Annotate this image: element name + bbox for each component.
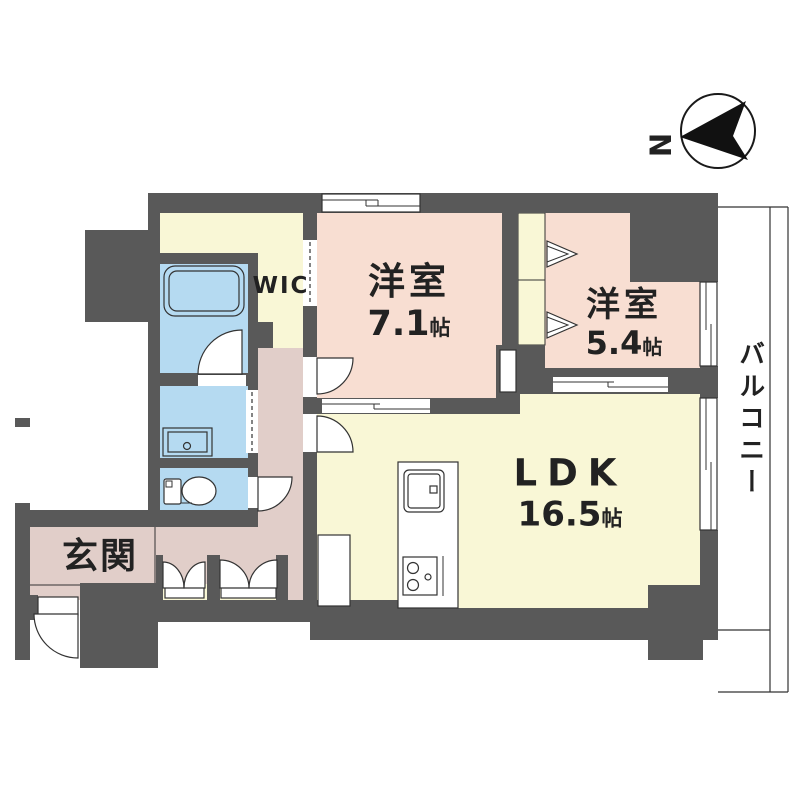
between-rooms-closet-floor xyxy=(518,213,545,345)
kitchen-counter xyxy=(398,462,458,608)
bedroom-main-sliding-door xyxy=(322,399,430,413)
compass-north-label: N xyxy=(646,133,676,157)
washroom-floor xyxy=(160,386,248,458)
bedroom-main-label: 洋室 7.1帖 xyxy=(367,263,450,343)
bedroom-second-window xyxy=(700,282,717,366)
toilet-icon xyxy=(164,477,216,505)
pipe-shaft xyxy=(500,350,516,392)
washroom-folding-door xyxy=(246,390,258,453)
compass xyxy=(680,94,755,168)
balcony-label: バルコニー xyxy=(735,340,762,500)
ldk-cabinet xyxy=(318,535,350,606)
entrance-door xyxy=(34,597,78,658)
ldk-floor xyxy=(317,394,700,608)
floor-plan: N 洋室 7.1帖 洋室 5.4帖 LDK 16.5帖 WIC 玄関 バルコニー xyxy=(0,0,800,800)
outer-wall-window xyxy=(15,427,30,503)
entrance-label: 玄関 xyxy=(62,538,138,576)
bedroom-main-window xyxy=(322,194,420,212)
wic-label: WIC xyxy=(253,274,310,298)
bedroom-second-sliding-door xyxy=(553,377,668,392)
ldk-label: LDK 16.5帖 xyxy=(514,455,627,534)
bedroom-second-label: 洋室 5.4帖 xyxy=(586,288,663,360)
ldk-window xyxy=(700,398,717,530)
floor-plan-drawing xyxy=(0,0,800,800)
